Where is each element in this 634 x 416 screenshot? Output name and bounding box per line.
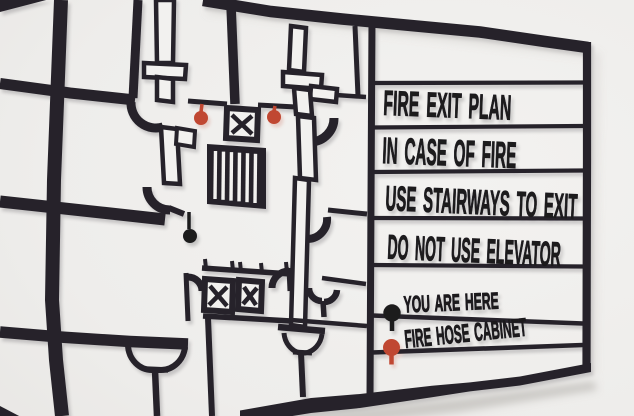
svg-text:IN CASE OF FIRE: IN CASE OF FIRE bbox=[382, 130, 517, 176]
svg-text:FIRE EXIT PLAN: FIRE EXIT PLAN bbox=[383, 84, 512, 128]
svg-text:DO NOT USE ELEVATOR: DO NOT USE ELEVATOR bbox=[387, 229, 562, 274]
svg-text:YOU ARE HERE: YOU ARE HERE bbox=[403, 288, 499, 318]
